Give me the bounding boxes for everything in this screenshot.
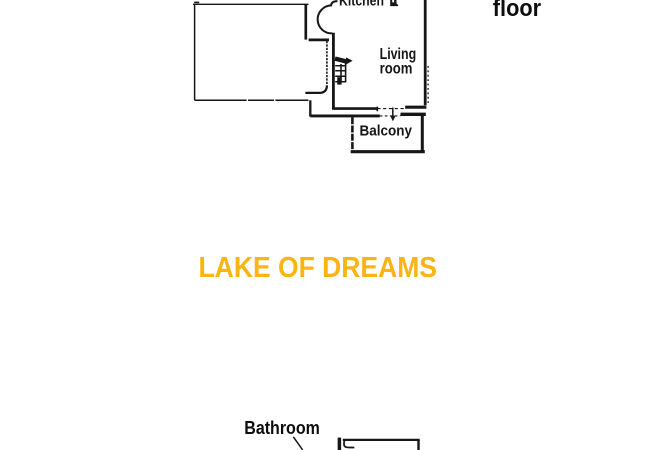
svg-text:room: room bbox=[380, 60, 413, 77]
svg-text:floor: floor bbox=[493, 0, 541, 22]
svg-text:Kitchen: Kitchen bbox=[339, 0, 384, 9]
svg-text:LAKE OF DREAMS: LAKE OF DREAMS bbox=[199, 252, 438, 284]
svg-text:Bathroom: Bathroom bbox=[244, 418, 319, 438]
svg-text:Balcony: Balcony bbox=[360, 124, 413, 140]
